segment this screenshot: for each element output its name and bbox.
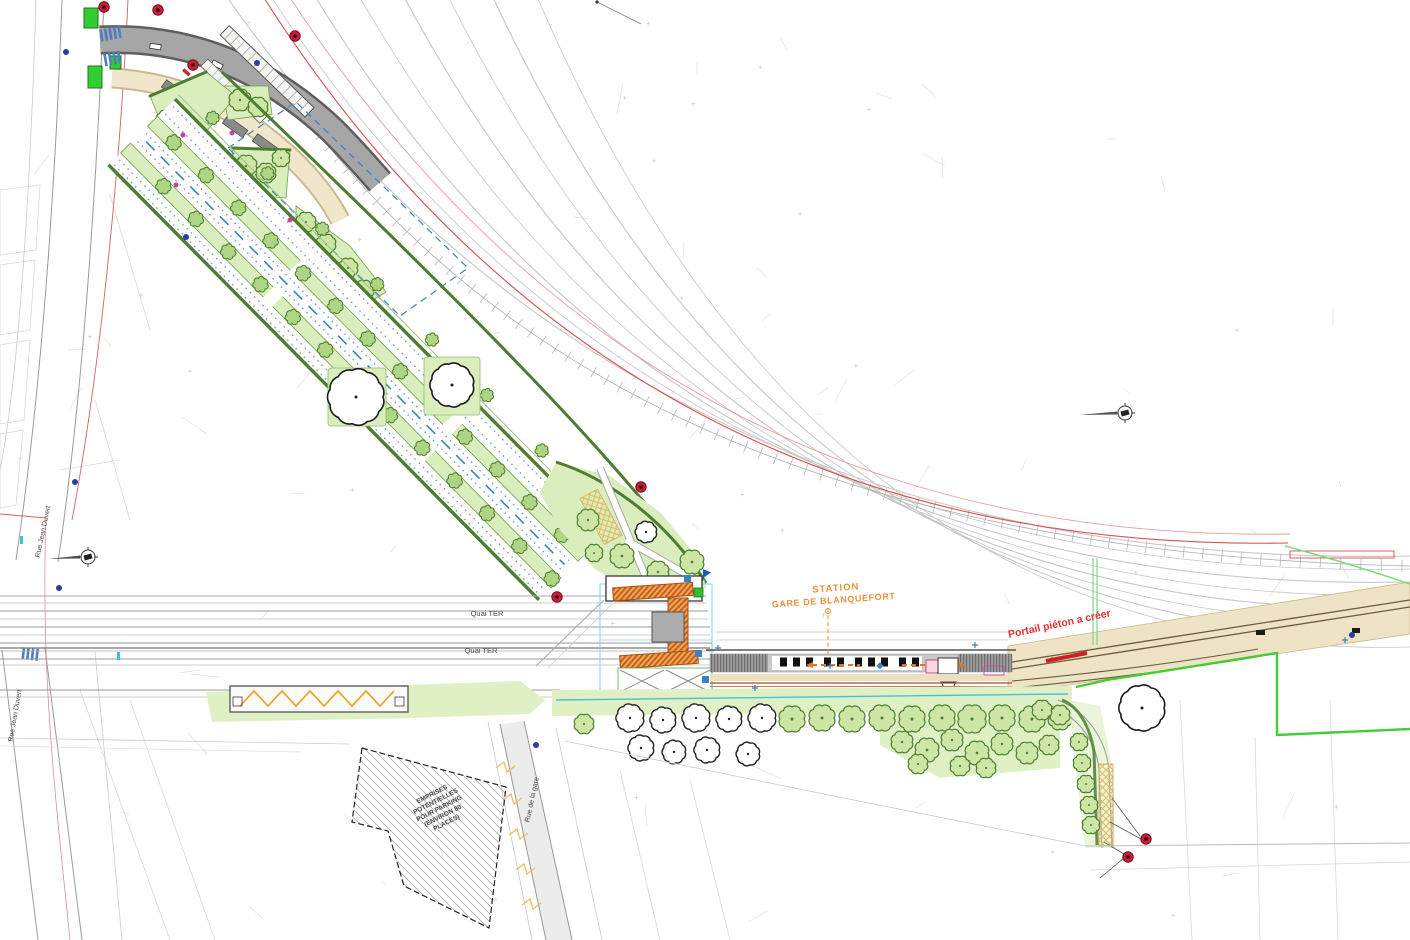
ticket-machine — [926, 660, 938, 673]
stair-ramp — [1099, 764, 1113, 846]
equipment-box — [694, 588, 703, 597]
plan-canvas: STATION GARE DE BLANQUEFORT Portail piét… — [0, 0, 1410, 940]
stair-box — [938, 658, 958, 674]
bike-shelter — [230, 686, 408, 712]
quai-ter-label-top: Quai TER — [471, 609, 504, 618]
lift-shaft — [652, 612, 684, 642]
quai-ter-label-bottom: Quai TER — [465, 646, 498, 655]
site-plan-drawing: STATION GARE DE BLANQUEFORT Portail piét… — [0, 0, 1410, 940]
